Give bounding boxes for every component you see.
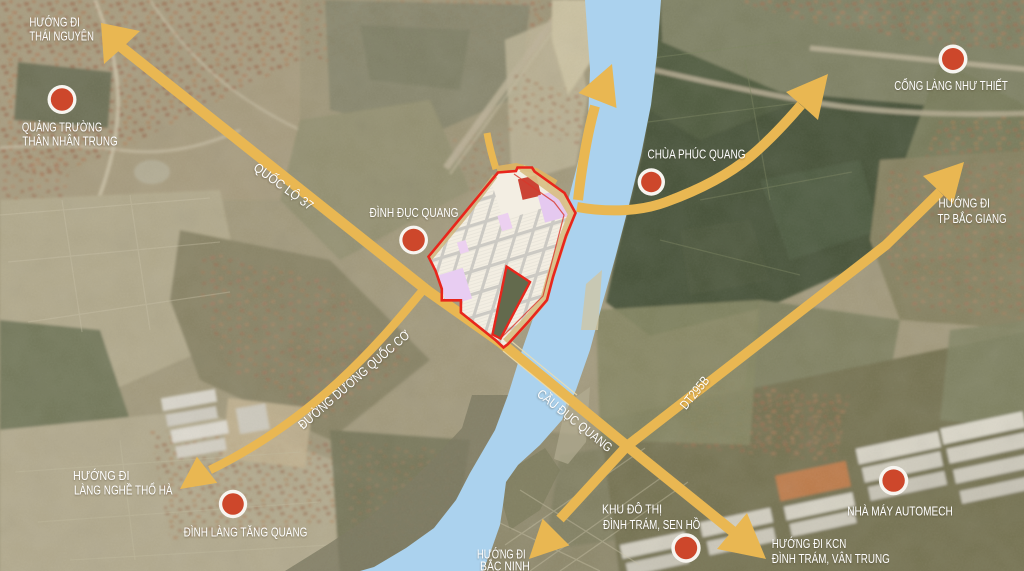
svg-text:HƯỚNG ĐI: HƯỚNG ĐI — [939, 196, 990, 211]
svg-text:QUẢNG TRƯỜNG: QUẢNG TRƯỜNG — [22, 120, 102, 135]
svg-text:THÁI NGUYÊN: THÁI NGUYÊN — [29, 29, 94, 44]
svg-text:ĐÌNH TRÁM, SEN HỒ: ĐÌNH TRÁM, SEN HỒ — [603, 517, 700, 532]
svg-text:NHÀ MÁY AUTOMECH: NHÀ MÁY AUTOMECH — [847, 504, 953, 519]
svg-text:BẮC NINH: BẮC NINH — [480, 559, 530, 571]
svg-text:ĐÌNH LÀNG TĂNG QUANG: ĐÌNH LÀNG TĂNG QUANG — [184, 525, 308, 540]
svg-text:ĐÌNH ĐỤC QUANG: ĐÌNH ĐỤC QUANG — [370, 205, 459, 220]
svg-text:CỔNG LÀNG NHƯ THIẾT: CỔNG LÀNG NHƯ THIẾT — [894, 78, 1008, 93]
svg-text:THÂN NHÂN TRUNG: THÂN NHÂN TRUNG — [22, 134, 117, 149]
svg-text:ĐÌNH TRÁM, VÂN TRUNG: ĐÌNH TRÁM, VÂN TRUNG — [772, 551, 890, 566]
svg-text:HƯỚNG ĐI: HƯỚNG ĐI — [29, 15, 79, 30]
svg-text:LÀNG NGHỀ THỔ HÀ: LÀNG NGHỀ THỔ HÀ — [74, 483, 173, 498]
svg-text:TP BẮC GIANG: TP BẮC GIANG — [938, 211, 1007, 226]
svg-text:HƯỚNG ĐI: HƯỚNG ĐI — [73, 468, 130, 483]
svg-text:KHU ĐÔ THỊ: KHU ĐÔ THỊ — [602, 502, 662, 517]
svg-text:HƯỚNG ĐI KCN: HƯỚNG ĐI KCN — [772, 536, 847, 551]
svg-text:CHÙA PHÚC QUANG: CHÙA PHÚC QUANG — [648, 147, 746, 162]
